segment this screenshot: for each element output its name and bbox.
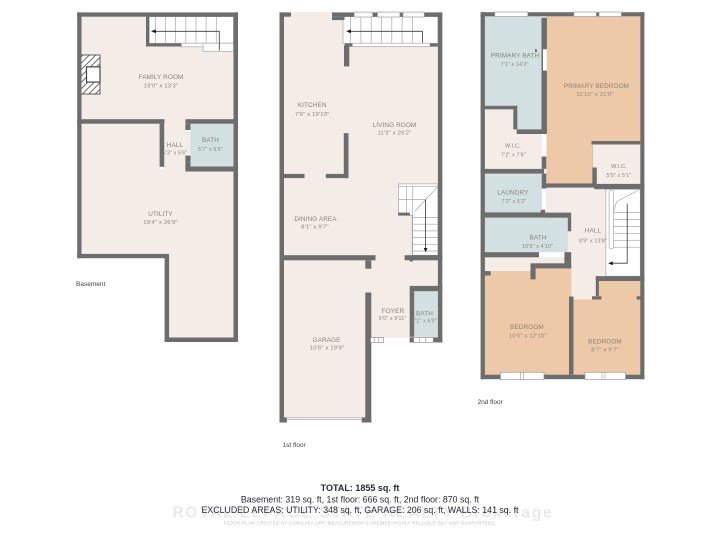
svg-text:HALL: HALL bbox=[167, 142, 184, 149]
svg-text:KITCHEN: KITCHEN bbox=[298, 102, 327, 109]
svg-text:EXCLUDED AREAS: UTILITY: 348 s: EXCLUDED AREAS: UTILITY: 348 sq. ft, GAR… bbox=[202, 505, 520, 515]
svg-text:PRIMARY BATH: PRIMARY BATH bbox=[491, 53, 540, 60]
svg-text:FAMILY ROOM: FAMILY ROOM bbox=[139, 74, 184, 81]
svg-text:Basement: 319 sq. ft, 1st floo: Basement: 319 sq. ft, 1st floor: 666 sq.… bbox=[241, 495, 480, 505]
svg-text:PRIMARY BEDROOM: PRIMARY BEDROOM bbox=[564, 83, 629, 90]
svg-text:W.I.C.: W.I.C. bbox=[611, 164, 627, 170]
svg-text:GARAGE: GARAGE bbox=[313, 337, 341, 344]
svg-text:LIVING ROOM: LIVING ROOM bbox=[373, 122, 417, 129]
svg-text:UTILITY: UTILITY bbox=[148, 211, 173, 218]
svg-text:5'7" x 5'6": 5'7" x 5'6" bbox=[198, 147, 223, 153]
svg-text:7'1" x 14'3": 7'1" x 14'3" bbox=[501, 62, 529, 68]
svg-text:FOYER: FOYER bbox=[382, 308, 405, 315]
svg-text:11'3" x 26'2": 11'3" x 26'2" bbox=[378, 130, 412, 136]
svg-text:DINING AREA: DINING AREA bbox=[294, 216, 337, 223]
svg-text:7'2" x 7'6": 7'2" x 7'6" bbox=[501, 152, 526, 158]
svg-text:TOTAL: 1855 sq. ft: TOTAL: 1855 sq. ft bbox=[321, 483, 400, 493]
svg-text:10'5" x 4'10": 10'5" x 4'10" bbox=[522, 244, 553, 250]
svg-text:5'0" x 9'11": 5'0" x 9'11" bbox=[379, 316, 407, 322]
svg-text:11'10" x 21'0": 11'10" x 21'0" bbox=[576, 92, 613, 98]
svg-text:FLOOR PLAN CREATED BY CUBICASA: FLOOR PLAN CREATED BY CUBICASA APP. MEAS… bbox=[224, 521, 497, 526]
svg-text:BATH: BATH bbox=[202, 137, 219, 144]
svg-text:10'5" x 12'10": 10'5" x 12'10" bbox=[509, 334, 547, 340]
svg-text:BATH: BATH bbox=[530, 235, 547, 242]
svg-text:5'5" x 5'1": 5'5" x 5'1" bbox=[607, 173, 632, 179]
svg-text:2nd floor: 2nd floor bbox=[478, 399, 504, 406]
svg-text:7'6" x 19'10": 7'6" x 19'10" bbox=[295, 112, 329, 118]
svg-text:3'1" x 6'0": 3'1" x 6'0" bbox=[412, 318, 437, 324]
svg-text:8'9" x 13'8": 8'9" x 13'8" bbox=[579, 239, 607, 245]
svg-text:7'2" x 5'2": 7'2" x 5'2" bbox=[502, 199, 527, 205]
svg-text:W.I.C.: W.I.C. bbox=[505, 143, 521, 149]
svg-text:LAUNDRY: LAUNDRY bbox=[497, 190, 529, 197]
svg-text:19'0" x 13'3": 19'0" x 13'3" bbox=[144, 84, 178, 90]
svg-text:BEDROOM: BEDROOM bbox=[510, 324, 544, 331]
svg-text:5'3" x 5'6": 5'3" x 5'6" bbox=[163, 151, 188, 157]
svg-text:8'7" x 9'7": 8'7" x 9'7" bbox=[591, 347, 619, 353]
svg-text:19'4" x 26'9": 19'4" x 26'9" bbox=[143, 220, 177, 226]
svg-text:BATH: BATH bbox=[416, 311, 433, 318]
svg-text:1st floor: 1st floor bbox=[283, 442, 307, 449]
svg-text:10'5" x 19'9": 10'5" x 19'9" bbox=[310, 345, 344, 351]
svg-text:8'1" x 9'7": 8'1" x 9'7" bbox=[301, 224, 329, 230]
svg-text:HALL: HALL bbox=[585, 228, 602, 235]
svg-text:Basement: Basement bbox=[76, 281, 105, 288]
svg-text:BEDROOM: BEDROOM bbox=[588, 338, 622, 345]
